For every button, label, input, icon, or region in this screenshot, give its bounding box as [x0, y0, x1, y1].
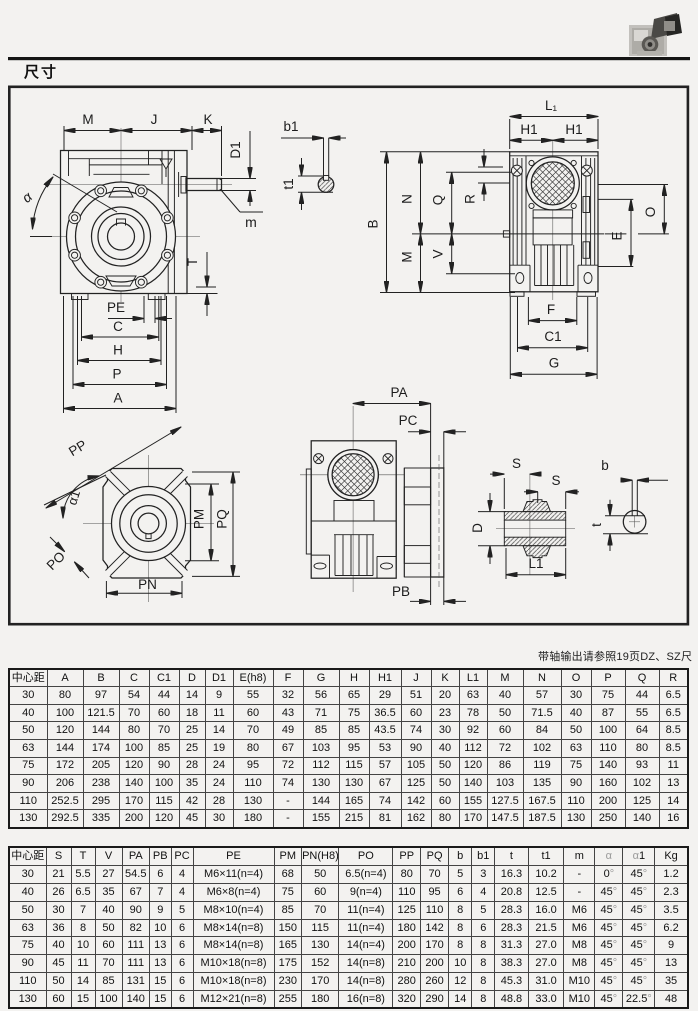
svg-text:B: B — [366, 219, 381, 228]
svg-text:N: N — [400, 194, 415, 204]
svg-text:K: K — [203, 112, 212, 127]
svg-text:O: O — [643, 207, 658, 218]
svg-text:t: t — [589, 523, 604, 527]
svg-text:H1: H1 — [565, 122, 582, 137]
svg-text:R: R — [463, 194, 478, 204]
svg-text:PN: PN — [138, 577, 157, 592]
svg-text:PQ: PQ — [215, 509, 230, 529]
svg-text:b: b — [601, 458, 609, 473]
svg-text:L1: L1 — [528, 556, 543, 571]
svg-text:M: M — [400, 251, 415, 262]
svg-text:M: M — [82, 112, 93, 127]
svg-text:PB: PB — [392, 584, 410, 599]
svg-text:PE: PE — [107, 300, 125, 315]
svg-text:PC: PC — [399, 413, 418, 428]
svg-text:E: E — [610, 231, 625, 240]
svg-text:α: α — [19, 188, 36, 206]
svg-text:V: V — [431, 249, 446, 258]
svg-text:PA: PA — [390, 385, 407, 400]
svg-text:S: S — [551, 473, 560, 488]
svg-text:D1: D1 — [228, 141, 243, 158]
svg-text:F: F — [547, 302, 555, 317]
svg-text:P: P — [112, 367, 121, 382]
svg-text:C: C — [113, 319, 123, 334]
svg-text:L₁: L₁ — [545, 98, 558, 113]
svg-text:PM: PM — [192, 509, 207, 529]
svg-text:S: S — [512, 456, 521, 471]
svg-text:H: H — [113, 343, 123, 358]
svg-text:C1: C1 — [544, 329, 561, 344]
svg-text:J: J — [151, 112, 158, 127]
svg-text:t1: t1 — [281, 178, 296, 189]
svg-text:b1: b1 — [283, 119, 298, 134]
svg-text:Q: Q — [431, 195, 446, 206]
svg-text:α1: α1 — [64, 488, 83, 507]
svg-text:A: A — [113, 391, 122, 406]
svg-text:PO: PO — [44, 549, 68, 573]
svg-text:D: D — [470, 523, 485, 533]
svg-text:PP: PP — [66, 437, 89, 459]
svg-text:G: G — [549, 356, 560, 371]
svg-text:H1: H1 — [520, 122, 537, 137]
svg-text:T: T — [185, 258, 200, 266]
svg-text:m: m — [245, 214, 257, 230]
